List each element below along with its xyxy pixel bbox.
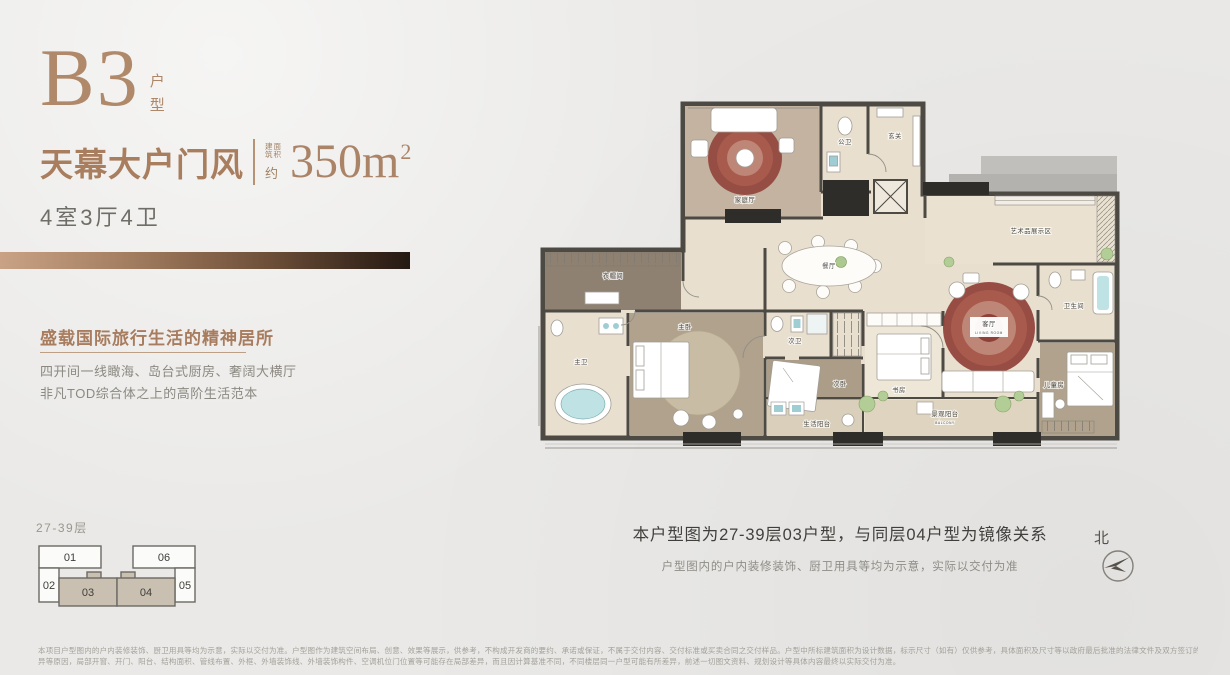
label-foyer: 玄关	[888, 131, 902, 140]
area-number: 350m	[290, 135, 399, 188]
brand-gradient-bar	[0, 252, 410, 269]
floorplan-caption: 本户型图为27-39层03户型，与同层04户型为镜像关系 户型图内的户内装修装饰…	[575, 521, 1105, 574]
unit-suffix-char-2: 型	[150, 94, 166, 115]
key-plan-floor-range: 27-39层	[36, 519, 198, 536]
label-master-bath: 主卫	[574, 357, 588, 366]
key-plan-unit-01: 01	[64, 552, 76, 564]
label-cloakroom: 衣帽间	[603, 271, 623, 280]
label-kids-room: 儿童房	[1044, 380, 1064, 389]
unit-code: B3	[40, 40, 140, 115]
label-study: 书房	[892, 385, 906, 394]
slogan-line-2: 非凡TOD综合体之上的高阶生活范本	[40, 383, 297, 405]
unit-suffix-char-1: 户	[150, 70, 166, 91]
floorplan: 家庭厅 公卫 玄关 艺术品展示区 餐厅 客厅 LIVING ROOM 卫生间 儿…	[533, 96, 1125, 458]
key-plan-unit-05: 05	[179, 580, 191, 592]
label-bathroom: 卫生间	[1064, 301, 1084, 310]
headline: 天幕大户门风 建面 筑积 约 350m2	[40, 138, 411, 186]
label-view-balcony-en: BALCONY	[935, 421, 955, 425]
key-plan-diagram: 01 02 03 04 05 06	[36, 543, 198, 613]
page-background: B3 户 型 天幕大户门风 建面 筑积 约 350m2 4室3厅4卫 盛载国际旅…	[0, 0, 1230, 675]
slogan-underline	[40, 352, 246, 353]
unit-code-suffix: 户 型	[150, 70, 166, 115]
disclaimer: 本项目户型图内的户内装修装饰、厨卫用具等均为示意，实际以交付为准。户型图作为建筑…	[38, 645, 1198, 667]
area-value: 350m2	[290, 138, 411, 186]
label-service-balcony: 生活阳台	[803, 419, 830, 428]
key-plan-unit-03: 03	[82, 587, 94, 599]
label-master-bedroom: 主卧	[678, 322, 692, 331]
label-second-bedroom: 次卧	[833, 379, 847, 388]
unit-badge: B3 户 型	[40, 40, 166, 115]
area-label-line-2: 筑积	[265, 151, 282, 160]
label-living-en: LIVING ROOM	[975, 331, 1003, 335]
key-plan-highlighted-units	[59, 572, 175, 606]
area-approx: 约	[265, 163, 282, 182]
label-view-balcony: 景观阳台	[931, 409, 958, 418]
label-guest-bath: 公卫	[838, 138, 852, 146]
rooms-summary: 4室3厅4卫	[40, 200, 161, 232]
compass-icon	[1098, 546, 1138, 586]
slogan-title: 盛载国际旅行生活的精神居所	[40, 324, 274, 349]
label-dining: 餐厅	[822, 261, 836, 270]
headline-divider	[253, 139, 255, 185]
headline-title: 天幕大户门风	[40, 138, 244, 186]
key-plan-unit-06: 06	[158, 552, 170, 564]
elevator-shaft	[874, 180, 907, 213]
compass: 北	[1090, 527, 1138, 591]
building-key-plan: 27-39层 01 02 03 04 05 06	[36, 519, 198, 618]
area-superscript: 2	[400, 139, 411, 164]
caption-sub: 户型图内的户内装修装饰、厨卫用具等均为示意，实际以交付为准	[575, 558, 1105, 574]
label-second-bath: 次卫	[788, 336, 802, 345]
caption-main: 本户型图为27-39层03户型，与同层04户型为镜像关系	[575, 521, 1105, 545]
slogan-body: 四开间一线瞰海、岛台式厨房、奢阔大横厅 非凡TOD综合体之上的高阶生活范本	[40, 361, 297, 405]
key-plan-unit-02: 02	[43, 580, 55, 592]
disclaimer-line-2: 异等原因，局部开窗、开门、阳台、结构面积、管线布置、外框、外墙装饰线、外墙装饰构…	[38, 656, 1198, 667]
label-art-display: 艺术品展示区	[1011, 226, 1052, 235]
compass-north-label: 北	[1094, 527, 1138, 548]
label-living: 客厅	[982, 319, 996, 328]
label-family-room: 家庭厅	[735, 195, 755, 204]
area-label: 建面 筑积 约	[265, 143, 282, 182]
disclaimer-line-1: 本项目户型图内的户内装修装饰、厨卫用具等均为示意，实际以交付为准。户型图作为建筑…	[38, 645, 1198, 656]
slogan-line-1: 四开间一线瞰海、岛台式厨房、奢阔大横厅	[40, 361, 297, 383]
key-plan-unit-04: 04	[140, 587, 152, 599]
